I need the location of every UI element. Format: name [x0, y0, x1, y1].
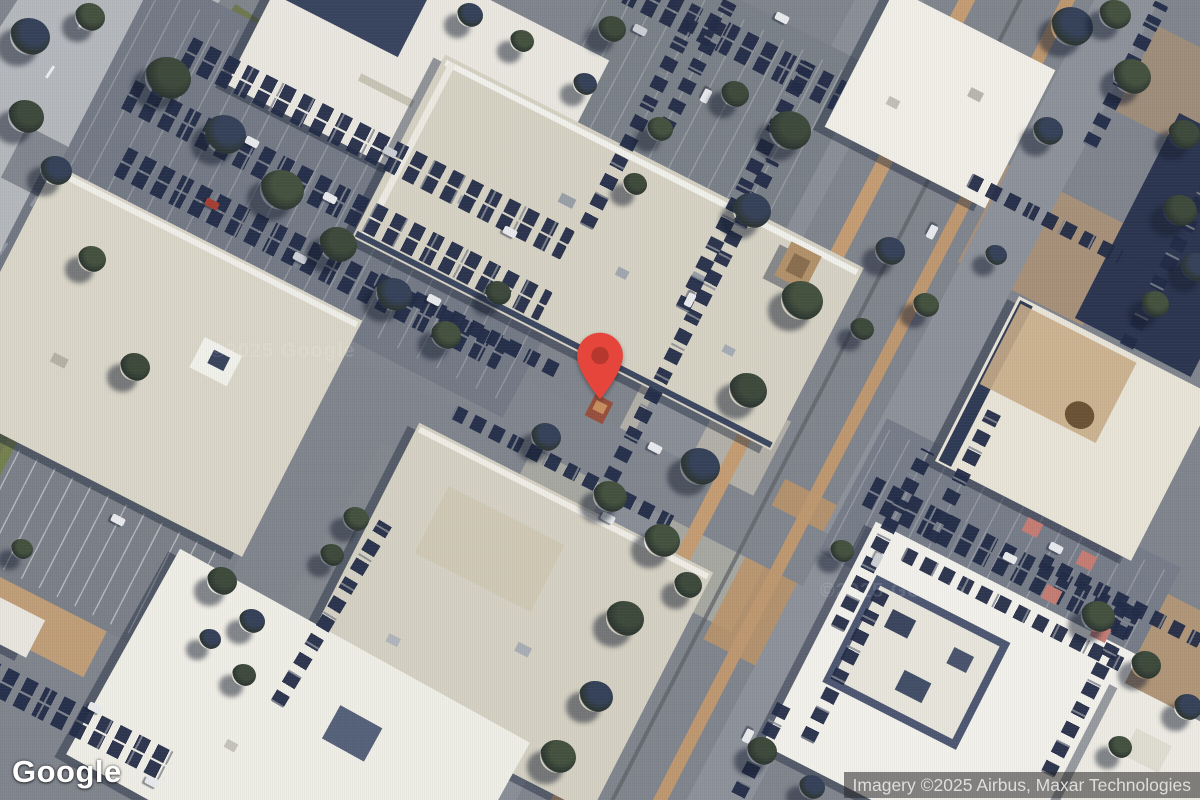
google-logo[interactable]: Google: [12, 754, 122, 790]
imagery-watermark: ©2025 Google: [820, 580, 966, 603]
rooftop-detail: [415, 486, 565, 612]
tree: [799, 775, 825, 799]
tree: [623, 173, 647, 195]
tree: [1081, 601, 1115, 632]
tree: [606, 601, 644, 636]
tree: [120, 353, 150, 381]
tree: [1141, 291, 1169, 317]
tree: [781, 281, 823, 320]
rooftop-detail: [886, 95, 901, 108]
tree: [343, 507, 369, 531]
tree: [75, 3, 105, 31]
tree: [593, 481, 627, 512]
tree: [319, 227, 357, 262]
tree: [674, 572, 702, 598]
rooftop-detail: [322, 704, 382, 761]
rooftop-detail: [385, 633, 401, 647]
tree: [199, 629, 221, 649]
tree: [457, 3, 483, 27]
tree: [985, 245, 1007, 265]
map-pin-icon[interactable]: [572, 331, 628, 401]
tree: [232, 664, 256, 686]
rooftop-detail: [592, 400, 607, 414]
tree: [598, 16, 626, 42]
tree: [769, 111, 811, 150]
tree: [320, 544, 344, 566]
tree: [8, 100, 44, 133]
rooftop-detail: [224, 738, 239, 752]
tree: [1168, 120, 1200, 149]
tree: [260, 170, 304, 210]
tree: [733, 193, 771, 228]
imagery-attribution: Imagery ©2025 Airbus, Maxar Technologies: [844, 772, 1200, 798]
tree: [11, 539, 33, 559]
tree: [431, 321, 461, 349]
rooftop-detail: [558, 192, 577, 208]
tree: [145, 57, 191, 99]
tree: [680, 448, 720, 485]
tree: [579, 681, 613, 712]
tree: [10, 18, 50, 55]
rooftop-detail: [722, 343, 736, 356]
tree: [644, 524, 680, 557]
rooftop-detail: [615, 266, 630, 279]
tree: [1033, 117, 1063, 145]
rooftop-detail: [514, 642, 532, 658]
satellite-map-canvas[interactable]: ©2025 Google ©2025 Google Google Imagery…: [0, 0, 1200, 800]
tree: [239, 609, 265, 633]
tree: [830, 540, 854, 562]
tree: [747, 737, 777, 765]
tree: [376, 278, 412, 311]
tree: [573, 73, 597, 95]
rooftop-detail: [273, 0, 441, 57]
tree: [1163, 195, 1197, 226]
tree: [913, 293, 939, 317]
rooftop-detail: [785, 253, 810, 279]
tree: [207, 567, 237, 595]
tree: [729, 373, 767, 408]
tree: [510, 30, 534, 52]
tree: [721, 81, 749, 107]
tree: [850, 318, 874, 340]
tree: [1131, 651, 1161, 679]
rooftop-detail: [49, 351, 68, 367]
tree: [875, 237, 905, 265]
rooftop-detail: [967, 86, 984, 101]
tree: [204, 115, 246, 154]
tree: [540, 740, 576, 773]
tree: [485, 281, 511, 305]
imagery-watermark: ©2025 Google: [210, 340, 356, 363]
tree: [1113, 59, 1151, 94]
tree: [40, 156, 72, 185]
rooftop-detail: [358, 72, 415, 106]
tree: [1051, 7, 1093, 46]
tree: [647, 117, 673, 141]
tree: [1108, 736, 1132, 758]
tree: [78, 246, 106, 272]
tree: [531, 423, 561, 451]
tree: [1174, 694, 1200, 720]
tree: [1099, 0, 1131, 29]
